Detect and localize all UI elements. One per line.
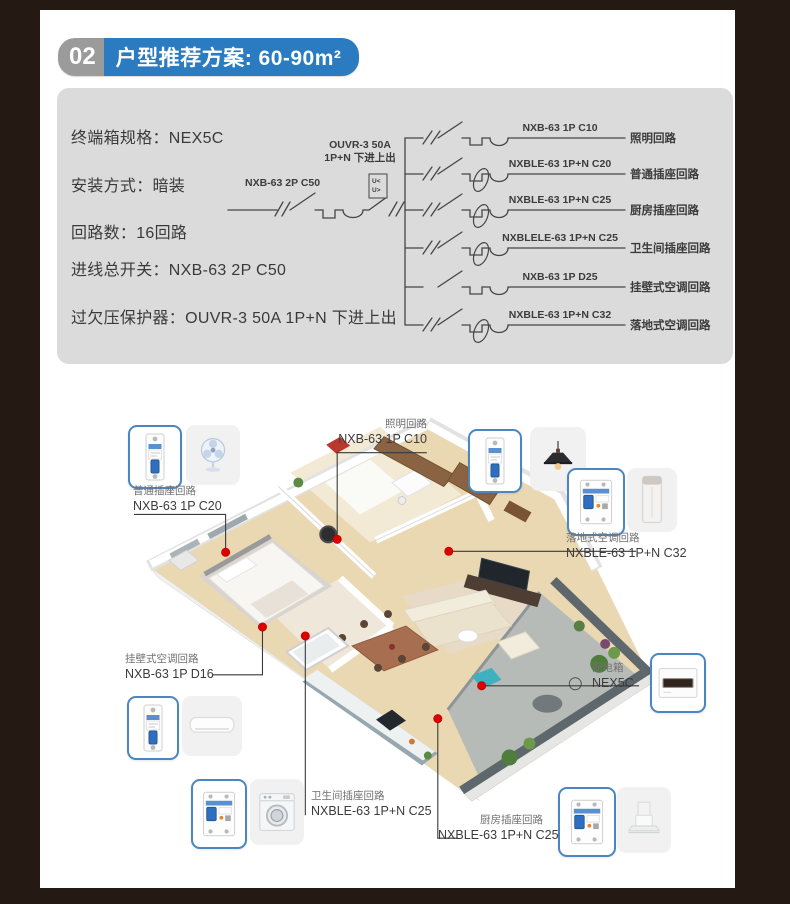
section-number: 02	[58, 38, 104, 76]
ouvr-box-u-under: U<	[372, 178, 381, 185]
callout-model: NEX5C	[592, 675, 634, 692]
spec-panel: 终端箱规格：NEX5C 安装方式：暗装 回路数：16回路 进线总开关：NXB-6…	[57, 88, 733, 364]
distribution-box-icon	[658, 667, 698, 699]
callout-circuit-name: 配电箱	[592, 661, 634, 675]
breaker-box-kitchen	[558, 787, 616, 857]
floor-ac-icon	[639, 474, 665, 526]
dot-floor-ac	[445, 547, 453, 555]
dot-bathroom	[301, 632, 309, 640]
breaker-1p-icon	[141, 703, 165, 753]
breaker-box-lighting	[468, 429, 522, 493]
table-fan-icon	[196, 436, 230, 474]
protector-label-2: 1P+N 下进上出	[324, 151, 395, 164]
callout-circuit-name: 挂壁式空调回路	[125, 652, 214, 666]
branch-model: NXBLELE-63 1P+N C25	[502, 232, 618, 244]
branch-name: 照明回路	[630, 131, 676, 145]
callout-circuit-name: 厨房插座回路	[438, 813, 543, 827]
wall-ac-icon	[189, 716, 235, 736]
callout-socket: 普通插座回路 NXB-63 1P C20	[133, 484, 222, 515]
plant	[293, 478, 303, 488]
breaker-box-wall-ac	[127, 696, 179, 760]
branch-name: 厨房插座回路	[630, 203, 699, 217]
callout-model: NXB-63 1P C10	[317, 431, 427, 448]
breaker-box-bathroom	[191, 779, 247, 849]
branch-model: NXB-63 1P D25	[522, 271, 597, 283]
branch-model: NXBLE-63 1P+N C25	[509, 194, 612, 206]
branch-name: 落地式空调回路	[630, 318, 711, 332]
content-area: 02 户型推荐方案: 60-90m² 终端箱规格：NEX5C 安装方式：暗装 回…	[40, 10, 735, 888]
range-hood-icon	[625, 799, 663, 841]
callout-model: NXBLE-63 1P+N C25	[311, 803, 432, 820]
dot-wall-ac	[258, 623, 266, 631]
appliance-box-washer	[250, 779, 304, 845]
dot-socket	[221, 548, 229, 556]
plant	[424, 752, 432, 760]
chair	[398, 496, 406, 504]
spec-circuit-count: 回路数：16回路	[71, 219, 187, 243]
plant	[523, 738, 535, 750]
branch-name: 挂壁式空调回路	[630, 280, 711, 294]
ouvr-box-u-over: U>	[372, 187, 381, 194]
branch-model: NXBLE-63 1P+N C20	[509, 158, 612, 170]
breaker-box-floor-ac	[567, 468, 625, 536]
callout-floor-ac: 落地式空调回路 NXBLE-63 1P+N C32	[566, 531, 687, 562]
appliance-box-fan	[186, 425, 240, 485]
callout-bathroom: 卫生间插座回路 NXBLE-63 1P+N C25	[311, 789, 432, 820]
callout-kitchen: 厨房插座回路 NXBLE-63 1P+N C25	[438, 813, 543, 844]
dot-lighting	[333, 535, 341, 543]
branch-wall-ac: NXB-63 1P D25 挂壁式空调回路	[405, 271, 711, 295]
branch-lighting: NXB-63 1P C10 照明回路	[405, 122, 676, 146]
main-breaker-label: NXB-63 2P C50	[245, 177, 320, 189]
callout-model: NXBLE-63 1P+N C25	[438, 827, 543, 844]
callout-model: NXBLE-63 1P+N C32	[566, 545, 687, 562]
branch-name: 卫生间插座回路	[630, 241, 711, 255]
plant	[502, 750, 518, 766]
callout-distribution-box: 配电箱 NEX5C	[592, 661, 634, 692]
appliance-box-floor-ac	[627, 468, 677, 532]
callout-model: NXB-63 1P C20	[133, 498, 222, 515]
breaker-1p-icon	[483, 436, 507, 486]
callout-circuit-name: 落地式空调回路	[566, 531, 687, 545]
circuit-diagram: U< U> NXB-63 2P C50 OUVR-3 50A 1P+N 下进上出…	[217, 96, 730, 354]
appliance-box-wall-ac	[182, 696, 242, 756]
protector-label-1: OUVR-3 50A	[329, 139, 391, 151]
branch-kitchen: NXBLE-63 1P+N C25 厨房插座回路	[405, 194, 699, 230]
breaker-box-socket	[128, 425, 182, 489]
callout-model: NXB-63 1P D16	[125, 666, 214, 683]
plant	[600, 639, 610, 649]
branch-model: NXB-63 1P C10	[522, 122, 597, 134]
callout-circuit-name: 卫生间插座回路	[311, 789, 432, 803]
plant	[574, 621, 585, 632]
page-title: 户型推荐方案: 60-90m²	[104, 38, 360, 76]
branch-model: NXBLE-63 1P+N C32	[509, 309, 612, 321]
callout-circuit-name: 照明回路	[317, 417, 427, 431]
branch-bathroom: NXBLELE-63 1P+N C25 卫生间插座回路	[405, 232, 711, 268]
callout-lighting: 照明回路 NXB-63 1P C10	[317, 417, 427, 448]
rcbo-2p-icon	[579, 477, 613, 527]
spec-install-type: 安装方式：暗装	[71, 172, 185, 196]
incoming-line: U< U> NXB-63 2P C50 OUVR-3 50A 1P+N 下进上出	[228, 139, 404, 218]
callout-circuit-name: 普通插座回路	[133, 484, 222, 498]
plant	[608, 647, 620, 659]
distribution-box-callout	[650, 653, 706, 713]
dot-kitchen	[434, 714, 442, 722]
callout-wall-ac: 挂壁式空调回路 NXB-63 1P D16	[125, 652, 214, 683]
appliance-box-range-hood	[617, 787, 671, 853]
coffee-table	[458, 630, 478, 642]
breaker-1p-icon	[143, 432, 167, 482]
rcbo-2p-icon	[570, 797, 604, 847]
floorplan-section: 普通插座回路 NXB-63 1P C20 照明回路 NXB-63 1P C10 …	[40, 365, 735, 888]
section-header: 02 户型推荐方案: 60-90m²	[58, 38, 359, 76]
branch-floor-ac: NXBLE-63 1P+N C32 落地式空调回路	[405, 309, 711, 345]
washing-machine-icon	[258, 791, 296, 833]
branch-name: 普通插座回路	[630, 167, 699, 181]
dot-distribution-box	[477, 682, 485, 690]
spec-terminal-box: 终端箱规格：NEX5C	[71, 124, 224, 148]
branch-socket: NXBLE-63 1P+N C20 普通插座回路	[405, 158, 699, 194]
balcony-table	[532, 695, 562, 713]
rcbo-2p-icon	[202, 789, 236, 839]
